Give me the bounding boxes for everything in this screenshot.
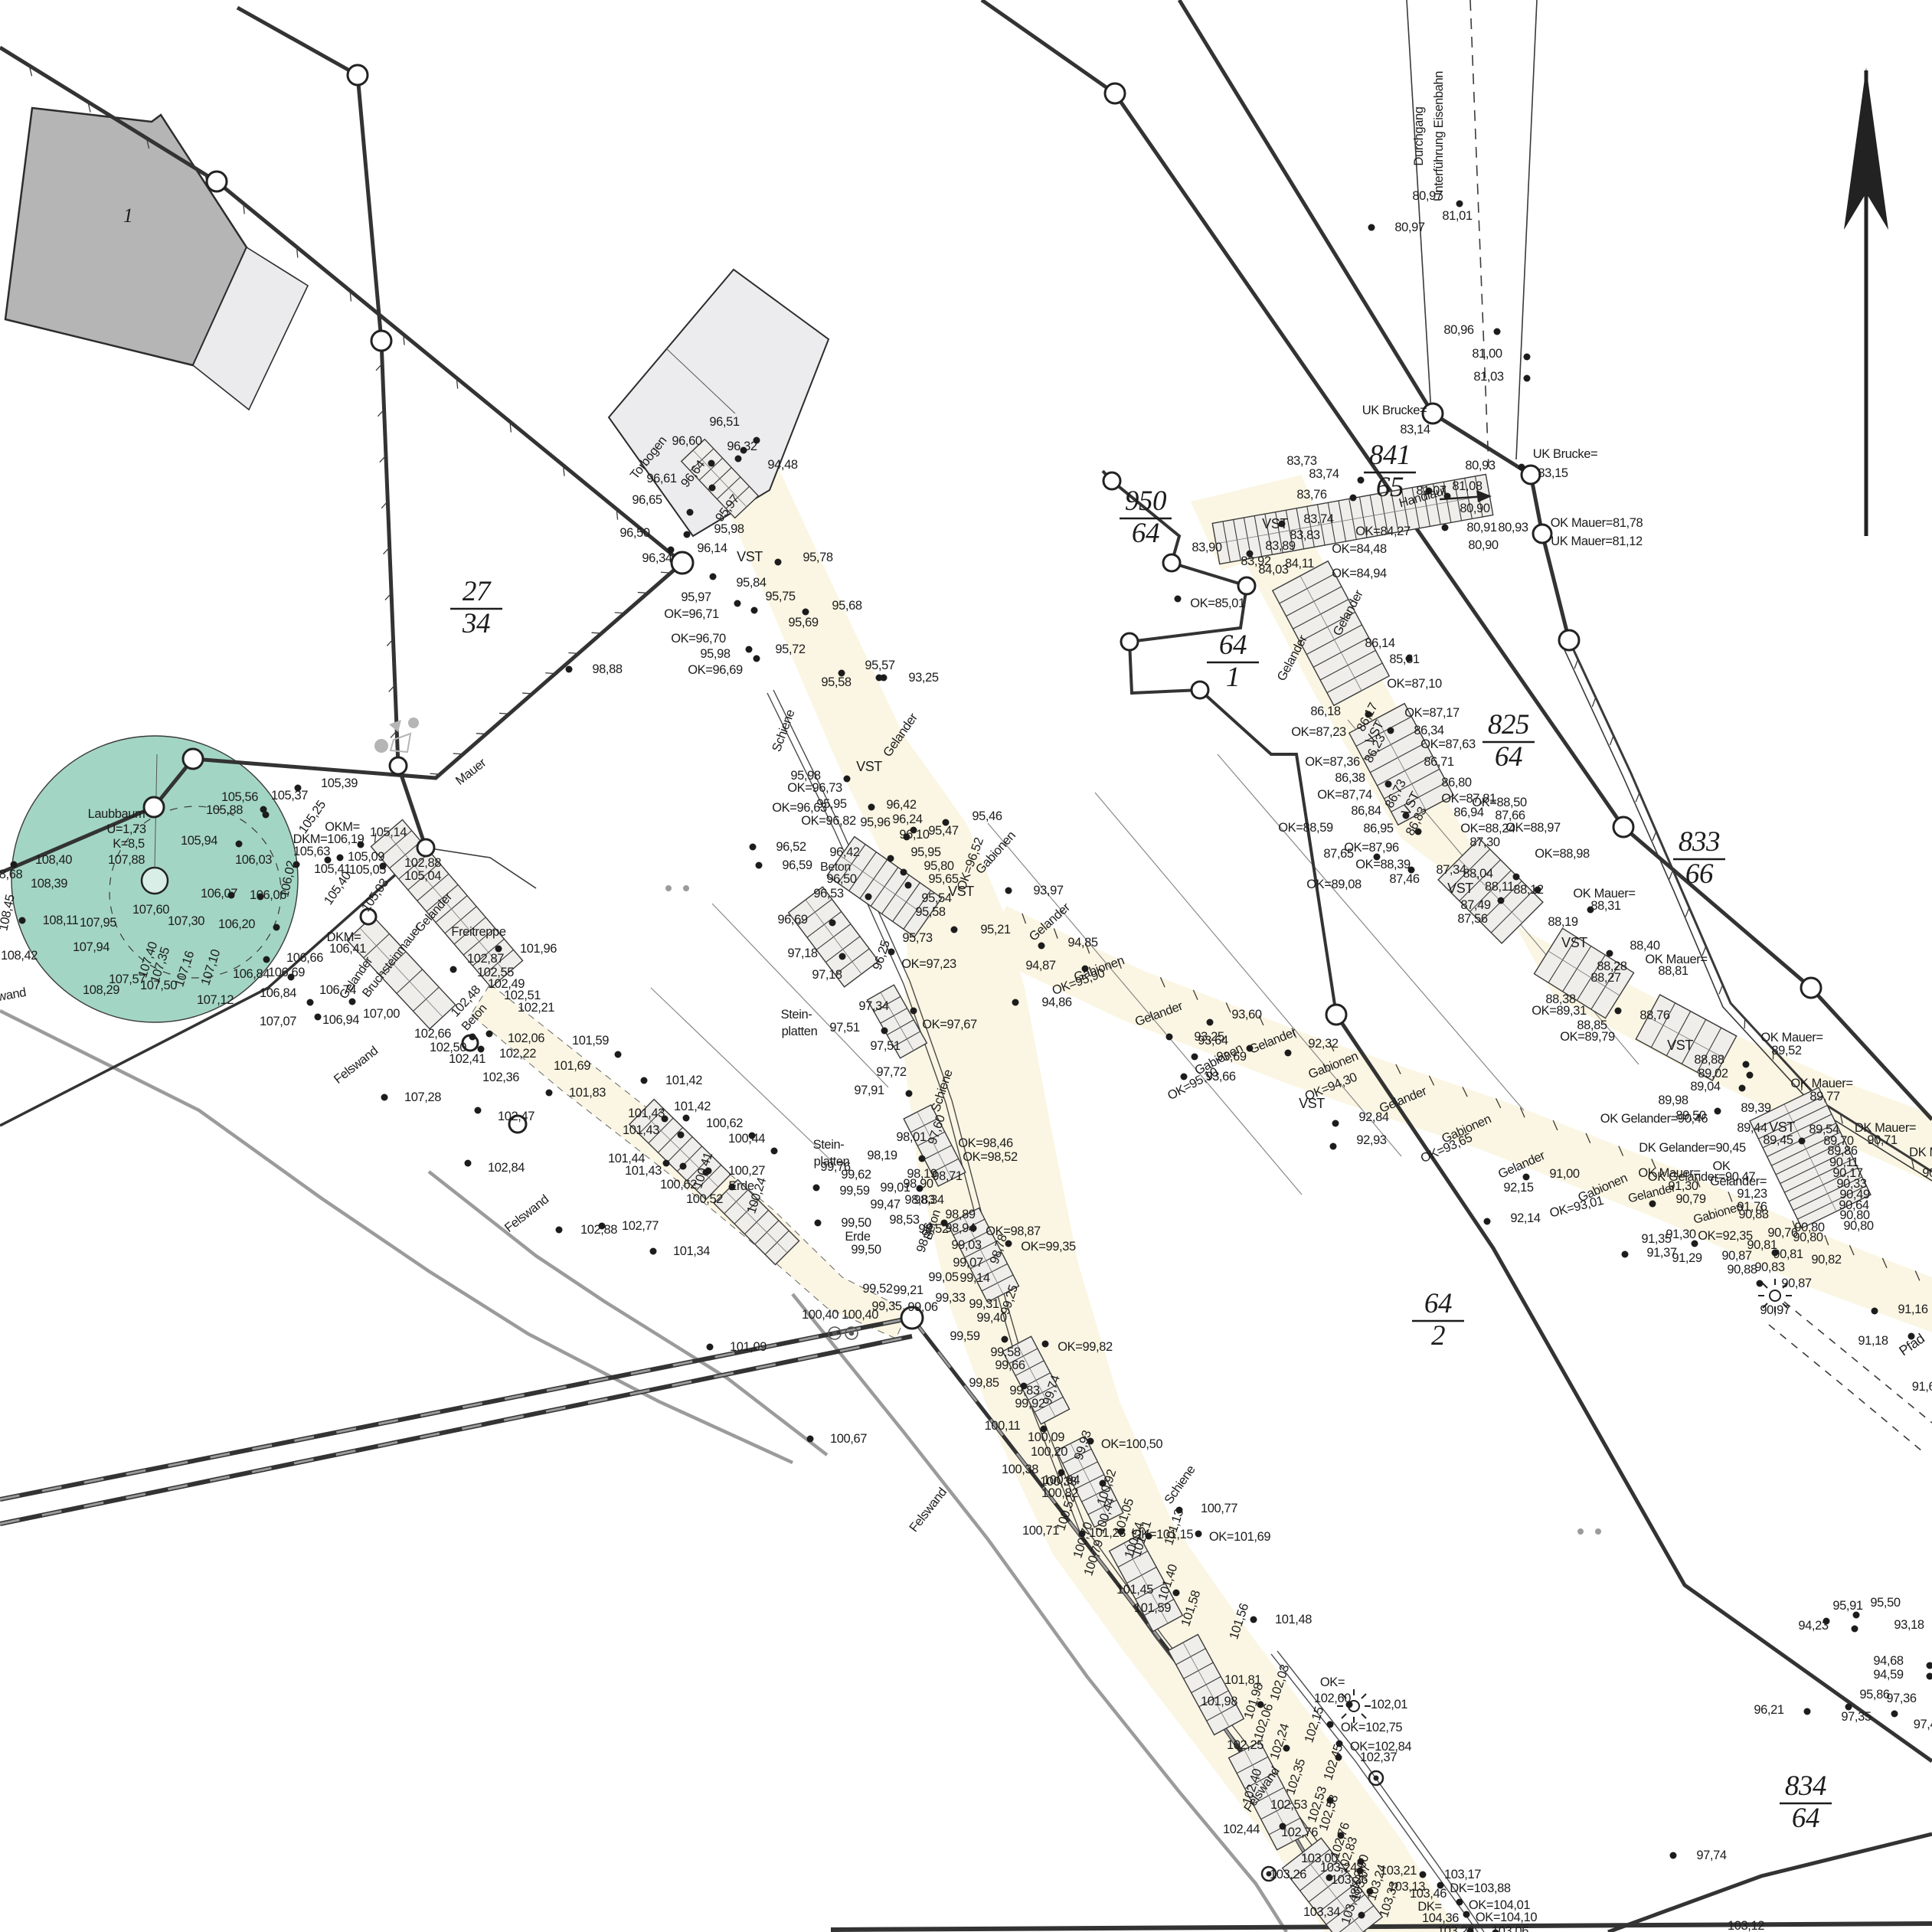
map-label: 99,59 bbox=[950, 1329, 980, 1343]
boundary-bottomright bbox=[1608, 1834, 1932, 1932]
survey-point bbox=[1757, 1280, 1764, 1287]
node bbox=[144, 797, 164, 817]
survey-point bbox=[815, 1220, 822, 1227]
map-label: 99,31 bbox=[969, 1297, 999, 1311]
map-label: 89,39 bbox=[1741, 1101, 1771, 1115]
survey-point bbox=[307, 999, 314, 1006]
map-label: VST bbox=[1667, 1038, 1693, 1053]
map-label: 102,44 bbox=[1223, 1822, 1260, 1836]
map-label: K=8,5 bbox=[113, 837, 145, 851]
svg-text:66: 66 bbox=[1685, 858, 1714, 890]
svg-text:27: 27 bbox=[463, 576, 492, 607]
survey-point bbox=[556, 1227, 563, 1234]
survey-point bbox=[1207, 1019, 1214, 1026]
survey-point bbox=[315, 1014, 322, 1021]
map-label: 96,50 bbox=[619, 526, 650, 540]
map-label: 100,40 bbox=[842, 1308, 878, 1322]
survey-point bbox=[1175, 596, 1182, 603]
survey-point bbox=[683, 1115, 690, 1122]
map-label: 96,42 bbox=[829, 845, 860, 859]
map-label: 99,21 bbox=[893, 1283, 924, 1297]
map-label: 102,47 bbox=[498, 1110, 534, 1123]
svg-text:65: 65 bbox=[1376, 472, 1404, 503]
map-label: 108,42 bbox=[1, 949, 38, 963]
survey-point bbox=[881, 1028, 888, 1035]
map-label: 100,62 bbox=[660, 1178, 697, 1192]
durchgang-center-dashed bbox=[1470, 0, 1489, 467]
map-label: 100,82 bbox=[1041, 1486, 1078, 1500]
map-label: 95,91 bbox=[1832, 1599, 1863, 1613]
map-label: OK=98,52 bbox=[963, 1150, 1018, 1164]
map-label: 100,11 bbox=[985, 1419, 1021, 1433]
map-label: OK=84,27 bbox=[1355, 525, 1411, 538]
map-label: 101,42 bbox=[665, 1074, 702, 1087]
map-label: 89,04 bbox=[1690, 1080, 1721, 1093]
map-label: 86,14 bbox=[1365, 636, 1395, 650]
map-label: 95,54 bbox=[921, 891, 952, 905]
map-label: 95,73 bbox=[902, 931, 933, 945]
map-label: OK=89,31 bbox=[1532, 1004, 1587, 1018]
map-label: 102,01 bbox=[1371, 1698, 1407, 1711]
map-label: OK=89,79 bbox=[1560, 1030, 1615, 1044]
map-label: 99,62 bbox=[841, 1168, 871, 1182]
map-label: 101,45 bbox=[1116, 1583, 1153, 1597]
survey-point bbox=[1524, 354, 1531, 361]
node bbox=[348, 65, 368, 85]
map-label: 107,28 bbox=[404, 1090, 441, 1104]
node bbox=[1533, 525, 1551, 543]
node bbox=[1801, 978, 1821, 998]
map-label: 99,50 bbox=[851, 1243, 881, 1257]
map-label: 100,67 bbox=[830, 1432, 867, 1446]
map-label: 102,37 bbox=[1360, 1751, 1397, 1764]
map-label: OK=96,71 bbox=[664, 607, 719, 621]
survey-point bbox=[678, 1132, 685, 1139]
map-label: 80,97 bbox=[1394, 221, 1425, 234]
map-label: 102,60 bbox=[1314, 1692, 1351, 1705]
map-label: 91,29 bbox=[1672, 1251, 1702, 1265]
map-label: 81,08 bbox=[1452, 479, 1483, 493]
map-label: 96,10 bbox=[899, 828, 930, 842]
map-label: 107,88 bbox=[108, 853, 145, 867]
survey-point bbox=[1524, 375, 1531, 382]
map-label: OK=84,94 bbox=[1332, 567, 1387, 580]
parcel-label: 2734 bbox=[450, 576, 502, 639]
map-label: 98,88 bbox=[592, 662, 623, 676]
map-label: OK=98,87 bbox=[986, 1224, 1041, 1238]
survey-point bbox=[1927, 1662, 1932, 1669]
map-label: 101,83 bbox=[569, 1086, 606, 1100]
map-label: 86,18 bbox=[1310, 704, 1341, 718]
map-label: 96,60 bbox=[672, 434, 702, 448]
map-label: 97,36 bbox=[1886, 1692, 1917, 1705]
map-label: 94,59 bbox=[1873, 1668, 1904, 1682]
bottom-border bbox=[831, 1924, 1932, 1930]
map-label: 93,69 bbox=[1216, 1050, 1247, 1064]
map-label: 98,71 bbox=[932, 1169, 963, 1183]
map-label: 93,66 bbox=[1205, 1070, 1236, 1084]
map-label: 97,4 bbox=[1914, 1718, 1932, 1731]
map-label: 101,48 bbox=[1275, 1613, 1312, 1626]
svg-text:64: 64 bbox=[1424, 1288, 1452, 1319]
map-label: 81,03 bbox=[1473, 370, 1504, 384]
survey-point bbox=[469, 1034, 476, 1041]
map-label: 105,56 bbox=[221, 790, 258, 804]
map-label: 93,18 bbox=[1894, 1618, 1924, 1632]
map-label: 99,58 bbox=[990, 1345, 1021, 1359]
survey-point bbox=[1456, 201, 1463, 208]
map-label: 90,88 bbox=[1727, 1263, 1757, 1277]
map-label: OK=88,97 bbox=[1505, 821, 1561, 835]
map-label: 102,53 bbox=[1270, 1798, 1307, 1812]
survey-point bbox=[775, 559, 782, 566]
laubbaum-trunk-symbol bbox=[142, 868, 168, 894]
map-label: OK=84,48 bbox=[1332, 542, 1387, 556]
map-label: 107,94 bbox=[73, 940, 110, 954]
map-label: 100,40 bbox=[802, 1308, 839, 1322]
map-label: 99,03 bbox=[951, 1238, 982, 1252]
map-label: 106,03 bbox=[235, 853, 272, 867]
survey-point bbox=[1385, 781, 1392, 788]
survey-point bbox=[1852, 1626, 1858, 1633]
map-label: 92,15 bbox=[1503, 1181, 1534, 1195]
node bbox=[183, 749, 203, 769]
map-label: 100,44 bbox=[728, 1132, 765, 1146]
map-label: 99,59 bbox=[839, 1184, 870, 1198]
map-label: 93,60 bbox=[1231, 1008, 1262, 1022]
survey-point bbox=[707, 1344, 714, 1351]
map-label: 95,72 bbox=[775, 642, 806, 656]
map-label: 90,83 bbox=[1738, 1208, 1769, 1221]
map-label: U=1,73 bbox=[106, 822, 145, 836]
map-label: 84,11 bbox=[1285, 557, 1314, 570]
map-label: VST bbox=[1769, 1120, 1795, 1135]
map-label: 91,35 bbox=[1641, 1232, 1672, 1246]
map-label: 86,95 bbox=[1363, 822, 1394, 835]
parcel-label: 641 bbox=[1207, 629, 1259, 693]
map-label: UK Brucke= bbox=[1362, 404, 1427, 417]
map-label: 107,95 bbox=[80, 916, 116, 930]
survey-point bbox=[1330, 1143, 1337, 1150]
map-label: 95,46 bbox=[972, 809, 1002, 823]
north-arrow bbox=[1844, 67, 1888, 536]
map-label: 80,93 bbox=[1465, 459, 1496, 472]
map-label: 99,14 bbox=[959, 1271, 990, 1285]
map-label: 95,69 bbox=[788, 616, 819, 629]
map-label: 80,97 bbox=[1412, 189, 1443, 203]
survey-point bbox=[650, 1248, 657, 1255]
survey-point bbox=[901, 869, 907, 876]
parcel-label: 83366 bbox=[1673, 826, 1725, 890]
survey-point bbox=[735, 456, 742, 463]
survey-point bbox=[1670, 1852, 1677, 1859]
parcel-label: 82564 bbox=[1483, 709, 1535, 773]
survey-point bbox=[1927, 1673, 1932, 1680]
map-label: 83,73 bbox=[1286, 454, 1317, 468]
map-label: OK=96,82 bbox=[801, 814, 856, 828]
map-label: 99,85 bbox=[969, 1376, 999, 1390]
map-label: 102,84 bbox=[488, 1161, 525, 1175]
map-label: VST bbox=[1561, 935, 1587, 950]
map-label: Stein- bbox=[781, 1008, 812, 1022]
map-label: 100,71 bbox=[1022, 1524, 1059, 1538]
map-label: 90,83 bbox=[1754, 1260, 1785, 1274]
survey-point bbox=[1498, 897, 1505, 904]
svg-text:34: 34 bbox=[462, 608, 490, 639]
map-label: 90,87 bbox=[1781, 1277, 1812, 1290]
map-label: 99,05 bbox=[928, 1270, 959, 1284]
survey-point bbox=[465, 1160, 472, 1167]
node bbox=[1326, 1005, 1346, 1025]
node bbox=[1238, 577, 1255, 594]
svg-text:950: 950 bbox=[1125, 485, 1167, 517]
node bbox=[1121, 633, 1138, 650]
map-label: 103,28 bbox=[1437, 1924, 1474, 1932]
svg-text:834: 834 bbox=[1785, 1770, 1826, 1802]
map-label: 80,90 bbox=[1460, 502, 1490, 515]
map-label: 80,93 bbox=[1498, 521, 1528, 534]
map-label: DK=103,88 bbox=[1450, 1881, 1511, 1895]
survey-point bbox=[910, 1008, 917, 1015]
svg-text:64: 64 bbox=[1219, 629, 1247, 661]
map-label: 88,19 bbox=[1548, 915, 1578, 929]
map-label: OK=99,82 bbox=[1058, 1340, 1113, 1354]
map-label: 101,43 bbox=[628, 1107, 665, 1120]
map-label: 101,98 bbox=[1201, 1695, 1237, 1708]
map-label: Freitreppe bbox=[451, 925, 505, 939]
survey-point bbox=[381, 1094, 388, 1101]
survey-point bbox=[734, 600, 741, 607]
manhole-icon bbox=[1369, 1771, 1383, 1785]
map-label: 95,68 bbox=[832, 599, 862, 613]
map-label: 95,97 bbox=[681, 590, 711, 604]
map-label: 100,20 bbox=[1031, 1445, 1067, 1459]
map-label: 107,12 bbox=[197, 993, 234, 1007]
node bbox=[1559, 630, 1579, 650]
node bbox=[371, 331, 391, 351]
svg-text:825: 825 bbox=[1488, 709, 1529, 740]
map-label: 97,51 bbox=[870, 1039, 901, 1053]
survey-point bbox=[349, 999, 356, 1005]
map-label: 101,23 bbox=[1089, 1526, 1126, 1540]
map-label: VST bbox=[1299, 1096, 1325, 1111]
map-label: 99,92 bbox=[1015, 1397, 1045, 1411]
survey-point bbox=[687, 509, 694, 516]
map-label: 101,09 bbox=[730, 1340, 767, 1354]
map-label: 96,42 bbox=[886, 798, 917, 812]
map-label: 97,18 bbox=[787, 946, 818, 960]
map-label: 99,06 bbox=[907, 1300, 938, 1314]
map-label: 88,76 bbox=[1639, 1008, 1670, 1022]
survey-point bbox=[865, 894, 872, 901]
map-label: OK=96,69 bbox=[688, 663, 743, 677]
map-label: 108,29 bbox=[83, 983, 119, 997]
survey-point bbox=[1442, 525, 1449, 531]
map-label: 106,41 bbox=[329, 942, 366, 956]
map-label: Stein- bbox=[813, 1138, 845, 1152]
survey-point bbox=[709, 485, 716, 492]
map-label: 101,96 bbox=[520, 942, 557, 956]
map-label: Pfad bbox=[1896, 1331, 1927, 1359]
map-label: 91,6 bbox=[1912, 1380, 1932, 1394]
map-label: 105,05 bbox=[349, 863, 386, 877]
map-label: 103,17 bbox=[1444, 1868, 1481, 1881]
map-label: OK=102,75 bbox=[1341, 1721, 1403, 1734]
map-label: 95,58 bbox=[915, 905, 946, 919]
map-label: 98,01 bbox=[896, 1130, 927, 1144]
survey-point bbox=[839, 953, 846, 960]
map-label: OK=99,35 bbox=[1021, 1240, 1076, 1254]
map-label: 90,82 bbox=[1811, 1253, 1842, 1267]
survey-map: DurchgangUnterführung EisenbahnTorbogen9… bbox=[0, 0, 1932, 1932]
survey-point bbox=[1038, 943, 1045, 950]
map-label: OK Mauer= bbox=[1790, 1077, 1852, 1090]
map-label: 100,27 bbox=[728, 1164, 765, 1178]
map-label: 91,23 bbox=[1737, 1187, 1767, 1201]
map-label: 105,37 bbox=[271, 789, 308, 803]
map-label: 107,60 bbox=[132, 903, 169, 917]
map-label: 91,00 bbox=[1549, 1167, 1580, 1181]
survey-point bbox=[1368, 224, 1375, 231]
map-label: 86,80 bbox=[1441, 776, 1472, 789]
survey-point bbox=[881, 675, 888, 682]
map-label: 101,43 bbox=[623, 1123, 659, 1137]
map-label: 95,75 bbox=[765, 590, 796, 603]
map-label: 95,50 bbox=[1870, 1596, 1901, 1610]
map-label: 95,86 bbox=[1859, 1688, 1890, 1702]
survey-point bbox=[1042, 1341, 1049, 1348]
map-label: 89,02 bbox=[1698, 1067, 1728, 1080]
map-label: 101,34 bbox=[673, 1244, 710, 1258]
survey-point bbox=[1523, 1174, 1530, 1181]
map-label: 96,50 bbox=[826, 872, 857, 886]
map-label: 80,96 bbox=[1443, 323, 1474, 337]
map-label: 103,34 bbox=[1303, 1905, 1340, 1919]
survey-point bbox=[1743, 1061, 1750, 1068]
survey-point bbox=[1607, 950, 1613, 957]
map-label: 87,49 bbox=[1460, 898, 1491, 912]
survey-point bbox=[263, 956, 270, 963]
map-label: 88,81 bbox=[1658, 964, 1688, 978]
map-label: 103,12 bbox=[1728, 1919, 1764, 1932]
survey-point bbox=[951, 927, 958, 933]
map-label: 101,59 bbox=[572, 1034, 609, 1048]
survey-point bbox=[1250, 1617, 1257, 1623]
survey-point bbox=[1456, 1899, 1463, 1906]
survey-point bbox=[1484, 1218, 1491, 1225]
node bbox=[1613, 817, 1633, 837]
map-label: 98,83 bbox=[904, 1193, 935, 1207]
map-label: 102,88 bbox=[404, 856, 441, 870]
map-label: 87,65 bbox=[1323, 847, 1354, 861]
node bbox=[672, 552, 693, 574]
map-label: 106,07 bbox=[201, 887, 237, 901]
map-label: 98,90 bbox=[903, 1177, 933, 1191]
survey-point bbox=[1518, 464, 1525, 471]
map-label: 83,74 bbox=[1309, 467, 1339, 481]
survey-point bbox=[829, 920, 836, 927]
node bbox=[390, 757, 407, 774]
map-label: 87,30 bbox=[1469, 835, 1500, 849]
map-label: 106,20 bbox=[218, 917, 255, 931]
survey-point bbox=[1332, 1120, 1339, 1127]
node bbox=[1105, 83, 1125, 103]
map-label: 8,68 bbox=[0, 868, 22, 881]
map-label: 103,06 bbox=[1492, 1924, 1528, 1932]
survey-point bbox=[756, 862, 763, 869]
map-label: 94,86 bbox=[1041, 995, 1072, 1009]
map-label: OK=101,69 bbox=[1209, 1530, 1271, 1544]
survey-point bbox=[708, 460, 715, 467]
survey-point bbox=[919, 1156, 926, 1162]
map-label: 87,34 bbox=[1436, 863, 1466, 877]
survey-point bbox=[1872, 1308, 1878, 1315]
map-label: 88,12 bbox=[1513, 883, 1544, 897]
map-label: 96,24 bbox=[892, 812, 923, 826]
svg-text:64: 64 bbox=[1792, 1803, 1819, 1834]
map-label: 97,74 bbox=[1696, 1849, 1727, 1862]
map-label: 96,52 bbox=[776, 840, 806, 854]
svg-text:841: 841 bbox=[1369, 440, 1411, 471]
map-label: 106,84 bbox=[260, 986, 296, 1000]
map-label: 80,91 bbox=[1466, 521, 1497, 534]
survey-point bbox=[1649, 1201, 1656, 1208]
map-label: OK=88,59 bbox=[1278, 821, 1333, 835]
map-label: 103,46 bbox=[1410, 1887, 1447, 1901]
map-label: 96,65 bbox=[632, 493, 662, 507]
map-label: 99,50 bbox=[841, 1216, 871, 1230]
survey-point bbox=[1358, 1912, 1365, 1919]
map-label: 86,71 bbox=[1424, 755, 1454, 769]
map-label: 98,94 bbox=[945, 1221, 976, 1235]
map-label: 90 bbox=[1922, 1166, 1932, 1180]
map-label: OK=87,36 bbox=[1305, 755, 1360, 769]
map-label: DK Gelander=90,45 bbox=[1639, 1141, 1746, 1155]
map-label: Schiene bbox=[1162, 1463, 1198, 1507]
map-label: 106,66 bbox=[286, 951, 323, 965]
survey-point bbox=[273, 924, 280, 931]
map-label: 103,26 bbox=[1331, 1873, 1368, 1887]
map-label: 105,14 bbox=[370, 825, 407, 839]
map-label: 105,09 bbox=[348, 850, 384, 864]
boundary-topright bbox=[982, 0, 1932, 1120]
survey-point bbox=[905, 882, 912, 889]
map-label: VST bbox=[1447, 881, 1473, 896]
map-label: 81,00 bbox=[1472, 347, 1502, 361]
map-label: 101,43 bbox=[625, 1164, 662, 1178]
node bbox=[1103, 472, 1120, 489]
survey-point bbox=[684, 531, 691, 538]
map-label: OK=87,74 bbox=[1317, 788, 1372, 802]
map-label: 102,21 bbox=[518, 1001, 554, 1015]
map-label: 101,59 bbox=[1134, 1601, 1171, 1615]
survey-point bbox=[710, 574, 717, 580]
map-label: 105,63 bbox=[293, 845, 330, 858]
survey-point bbox=[906, 1090, 913, 1097]
map-label: 83,15 bbox=[1538, 466, 1568, 480]
map-label: 105,25 bbox=[296, 798, 329, 836]
map-label: 102,06 bbox=[508, 1031, 544, 1045]
map-label: 81,07 bbox=[1416, 484, 1447, 498]
map-label: 94,23 bbox=[1798, 1619, 1829, 1633]
map-label: 102,88 bbox=[580, 1223, 617, 1237]
map-label: 89,45 bbox=[1763, 1133, 1793, 1147]
map-label: DK M bbox=[1909, 1146, 1932, 1159]
map-label: 89,98 bbox=[1658, 1093, 1688, 1107]
survey-point bbox=[263, 812, 270, 819]
survey-point bbox=[1715, 1108, 1721, 1115]
map-label: OK=98,46 bbox=[958, 1136, 1013, 1150]
